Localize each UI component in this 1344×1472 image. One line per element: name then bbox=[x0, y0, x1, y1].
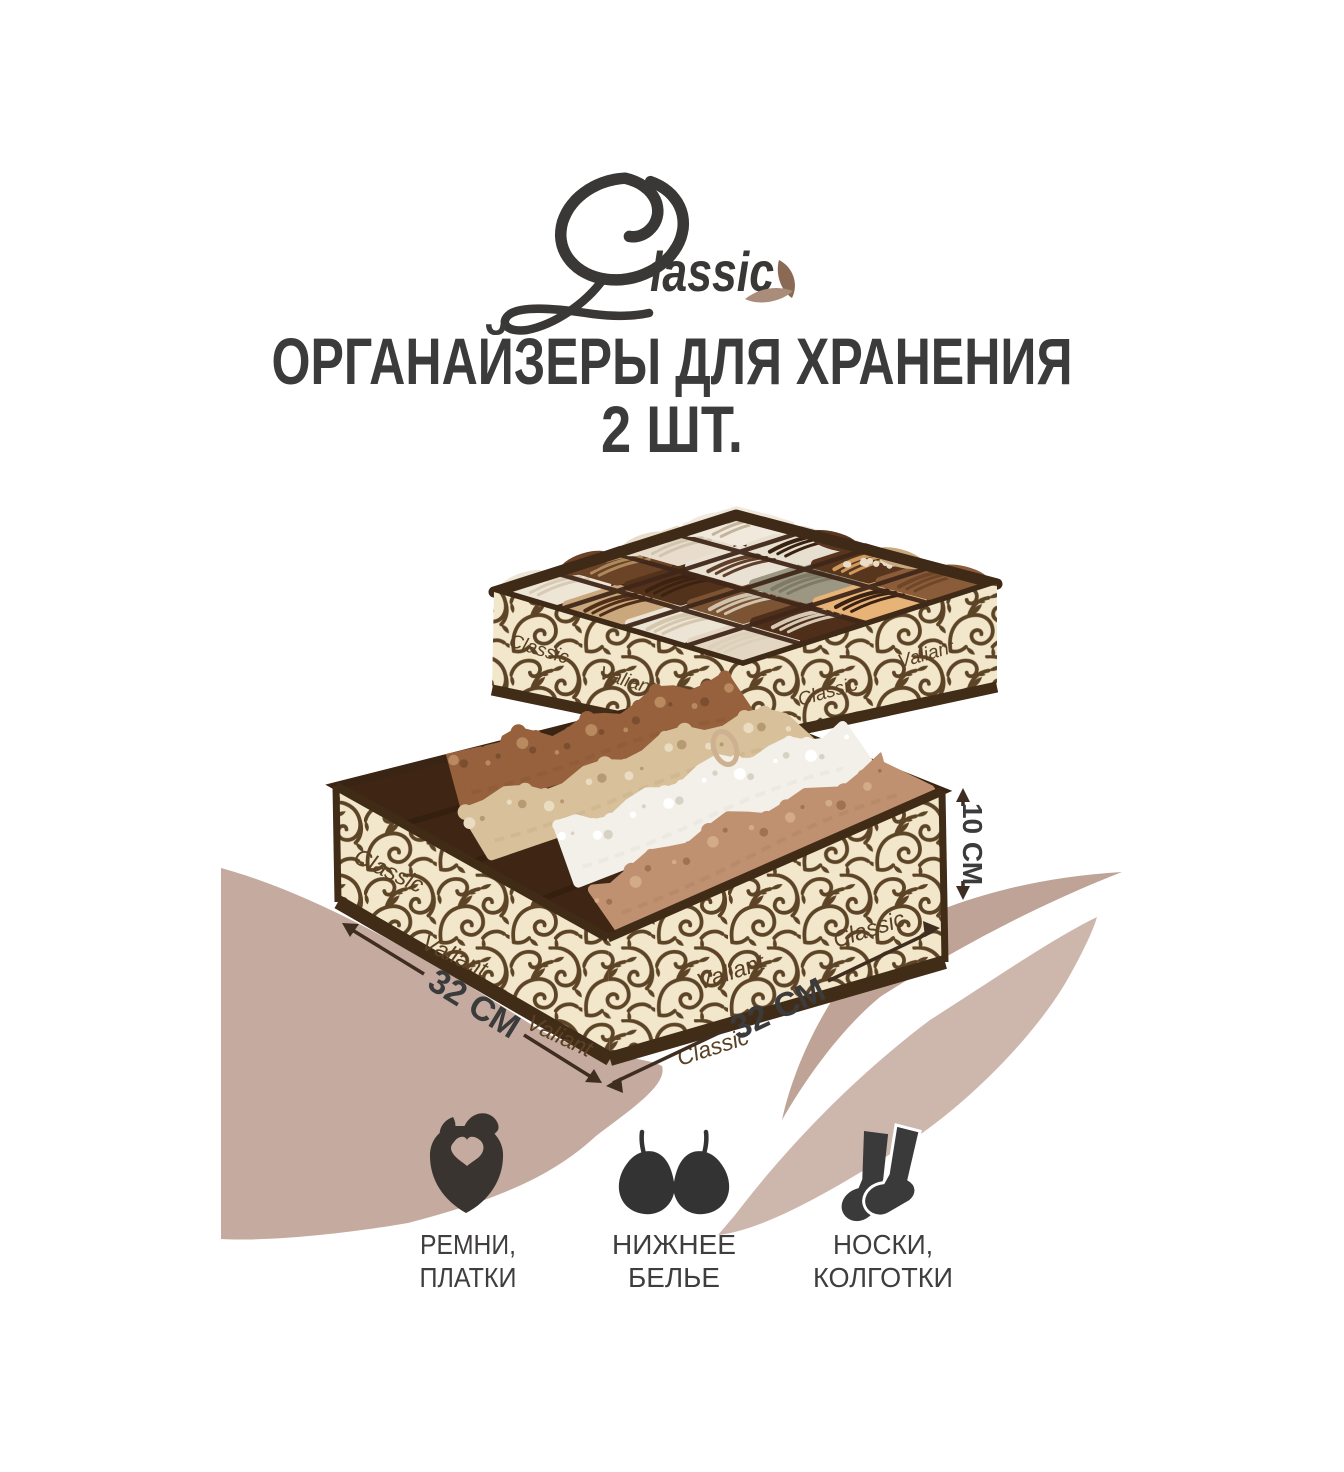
svg-text:КОЛГОТКИ: КОЛГОТКИ bbox=[813, 1262, 953, 1293]
svg-text:НОСКИ,: НОСКИ, bbox=[833, 1229, 933, 1260]
svg-text:РЕМНИ,: РЕМНИ, bbox=[420, 1229, 516, 1260]
svg-text:2 ШТ.: 2 ШТ. bbox=[601, 392, 743, 466]
svg-text:БЕЛЬЕ: БЕЛЬЕ bbox=[628, 1262, 720, 1293]
svg-text:ОРГАНАЙЗЕРЫ ДЛЯ ХРАНЕНИЯ: ОРГАНАЙЗЕРЫ ДЛЯ ХРАНЕНИЯ bbox=[272, 323, 1073, 398]
svg-text:10 СМ: 10 СМ bbox=[957, 803, 988, 885]
svg-text:НИЖНЕЕ: НИЖНЕЕ bbox=[612, 1229, 736, 1260]
svg-text:ПЛАТКИ: ПЛАТКИ bbox=[420, 1262, 517, 1293]
